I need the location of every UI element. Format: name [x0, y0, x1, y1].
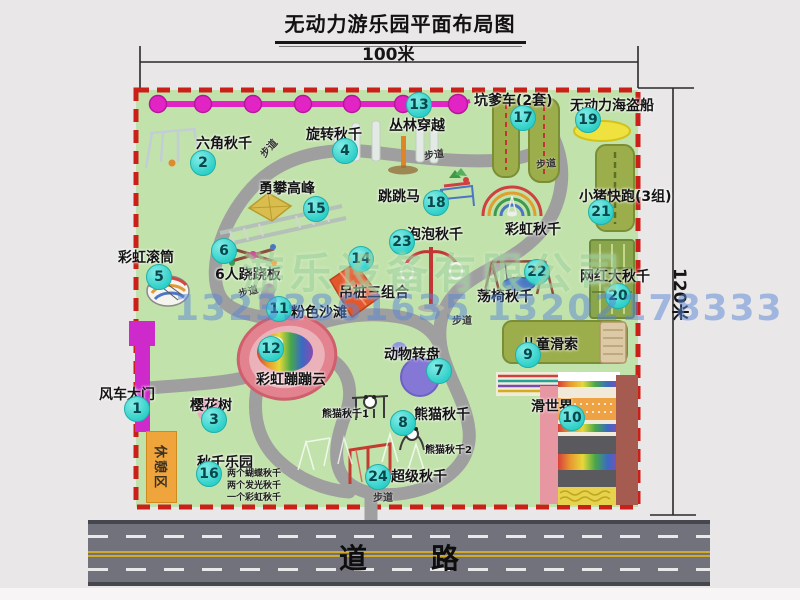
- attraction-badge-8: 8: [390, 410, 416, 436]
- attraction-label-24: 超级秋千: [391, 466, 447, 486]
- label-rainbow-swing: 彩虹秋千: [505, 219, 561, 239]
- road-label: 道路: [339, 537, 523, 577]
- attraction-badge-5: 5: [146, 264, 172, 290]
- attraction-badge-3: 3: [201, 407, 227, 433]
- attraction-badge-15: 15: [303, 196, 329, 222]
- attraction-badge-22: 22: [524, 259, 550, 285]
- rest-area-label: 休憩区: [152, 444, 171, 489]
- dimension-height-label: 120米: [669, 268, 694, 321]
- road: 道路: [88, 520, 710, 586]
- attraction-badge-19: 19: [575, 107, 601, 133]
- attraction-badge-23: 23: [389, 229, 415, 255]
- path-label-3: 步道: [535, 154, 556, 171]
- attraction-label-6: 6人跷跷板: [215, 264, 281, 284]
- attraction-label-22: 荡椅秋千: [477, 286, 533, 306]
- swing-park-note-3: 一个彩虹秋千: [227, 490, 281, 503]
- attraction-badge-4: 4: [332, 138, 358, 164]
- attraction-label-8: 熊猫秋千: [414, 404, 470, 424]
- dimension-width-label: 100米: [362, 40, 415, 65]
- attraction-badge-6: 6: [211, 238, 237, 264]
- attraction-label-15: 勇攀高峰: [259, 178, 315, 198]
- attraction-badge-12: 12: [258, 336, 284, 362]
- attraction-badge-10: 10: [559, 405, 585, 431]
- attraction-badge-16: 16: [196, 461, 222, 487]
- bottom-margin: [0, 588, 800, 600]
- rest-area: 休憩区: [146, 431, 177, 503]
- label-panda-swing-2: 熊猫秋千2: [425, 441, 472, 456]
- attraction-badge-14: 14: [348, 246, 374, 272]
- screenshot-root: 无动力游乐园平面布局图 100米 120米: [0, 0, 800, 600]
- attraction-label-12: 彩虹蹦蹦云: [256, 369, 326, 389]
- page-title: 无动力游乐园平面布局图: [275, 8, 526, 44]
- attraction-label-23: 泡泡秋千: [407, 224, 463, 244]
- attraction-badge-13: 13: [406, 92, 432, 118]
- attraction-badge-21: 21: [588, 199, 614, 225]
- attraction-label-17: 坑爹车(2套): [474, 90, 553, 110]
- attraction-badge-1: 1: [124, 396, 150, 422]
- attraction-badge-18: 18: [423, 190, 449, 216]
- label-panda-swing-1: 熊猫秋千1: [322, 405, 369, 420]
- path-label-5: 步道: [452, 312, 472, 327]
- attraction-badge-7: 7: [426, 358, 452, 384]
- attraction-badge-20: 20: [605, 283, 631, 309]
- attraction-label-13: 丛林穿越: [389, 115, 445, 135]
- attraction-badge-11: 11: [266, 296, 292, 322]
- attraction-badge-9: 9: [515, 342, 541, 368]
- attraction-label-14: 吊桩三组合: [339, 282, 409, 302]
- attraction-badge-24: 24: [365, 464, 391, 490]
- page-title-wrap: 无动力游乐园平面布局图: [0, 8, 800, 44]
- path-label-2: 步道: [423, 145, 445, 163]
- attraction-label-11: 粉色沙滩: [291, 302, 347, 322]
- attraction-badge-2: 2: [190, 150, 216, 176]
- attraction-label-18: 跳跳马: [378, 186, 420, 206]
- attraction-badge-17: 17: [510, 105, 536, 131]
- attraction-label-5: 彩虹滚筒: [118, 247, 174, 267]
- path-label-6: 步道: [373, 489, 393, 504]
